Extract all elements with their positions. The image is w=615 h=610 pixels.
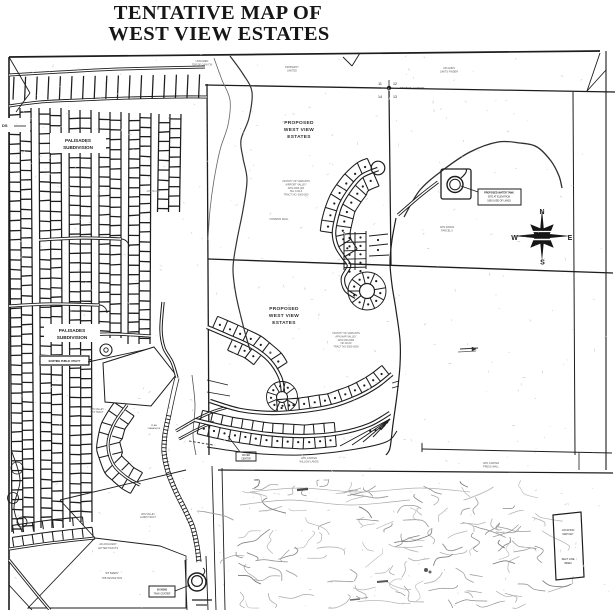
svg-text:WATER: WATER: [242, 454, 250, 457]
svg-text:LOCATION: LOCATION: [562, 529, 575, 532]
svg-text:SITE AT ELEVATION: SITE AT ELEVATION: [488, 196, 511, 199]
svg-text:SECT LINE: SECT LINE: [562, 558, 575, 561]
svg-text:N: N: [539, 209, 544, 216]
svg-text:13: 13: [393, 95, 397, 99]
svg-text:S: S: [540, 260, 545, 267]
svg-text:TANK CENTER: TANK CENTER: [154, 593, 171, 596]
svg-text:APN VALLEY: APN VALLEY: [141, 513, 155, 516]
svg-text:TRB CENTER SITE: TRB CENTER SITE: [102, 578, 123, 580]
svg-text:PALISADES: PALISADES: [59, 328, 85, 333]
svg-text:COMMON WALL: COMMON WALL: [269, 218, 289, 221]
svg-text:PLAN: PLAN: [151, 424, 157, 427]
svg-text:12: 12: [393, 82, 397, 86]
svg-text:LETTER TRACTS: LETTER TRACTS: [98, 547, 119, 550]
svg-text:PALISADES: PALISADES: [65, 138, 91, 143]
svg-text:ST MARY: ST MARY: [105, 571, 118, 575]
svg-text:DS: DS: [2, 123, 8, 128]
svg-text:14: 14: [378, 95, 382, 99]
svg-text:TRACT NO 0000-0000: TRACT NO 0000-0000: [333, 346, 359, 349]
svg-text:TRACT NO. 0000-000: TRACT NO. 0000-000: [284, 194, 309, 197]
svg-text:SUBDIVISION: SUBDIVISION: [63, 145, 94, 150]
svg-text:SUBDIVISION: SUBDIVISION: [57, 335, 88, 340]
svg-text:TENTATIVE MAP OF: TENTATIVE MAP OF: [114, 2, 322, 24]
svg-text:W: W: [511, 235, 518, 242]
svg-text:E: E: [568, 235, 573, 242]
svg-text:APN 00-000: APN 00-000: [146, 190, 160, 193]
svg-text:WEST VIEW: WEST VIEW: [269, 313, 299, 319]
svg-text:CANADA DR: CANADA DR: [148, 427, 161, 430]
svg-text:ESTATES: ESTATES: [287, 134, 311, 140]
svg-text:1800 (USE OF LAND): 1800 (USE OF LAND): [487, 200, 511, 203]
svg-text:WEST VIEW ESTATES: WEST VIEW ESTATES: [108, 23, 329, 45]
svg-text:TOP OF CANYON: TOP OF CANYON: [192, 63, 213, 66]
svg-text:ESTATES: ESTATES: [272, 320, 296, 326]
svg-text:50 50000: 50 50000: [157, 589, 168, 592]
svg-text:AD ADJACENT: AD ADJACENT: [99, 543, 117, 546]
svg-text:PARCEL 0: PARCEL 0: [441, 229, 453, 232]
svg-text:APN VALLEY: APN VALLEY: [90, 408, 104, 411]
svg-text:LIMITED: LIMITED: [287, 69, 297, 72]
svg-text:LANDS TRACT: LANDS TRACT: [140, 516, 157, 519]
svg-text:LOT TRACT: LOT TRACT: [91, 411, 104, 414]
svg-text:11: 11: [378, 82, 382, 86]
svg-text:CENTER: CENTER: [241, 459, 251, 461]
svg-text:INDEX: INDEX: [564, 562, 572, 565]
svg-text:SECTION CORNER: SECTION CORNER: [400, 86, 424, 90]
svg-text:PROPOSED: PROPOSED: [284, 120, 314, 126]
svg-text:PROPOSED: PROPOSED: [269, 306, 299, 312]
svg-text:WILLOW LANDS: WILLOW LANDS: [299, 460, 319, 463]
svg-text:PROPOSED WATER TANK: PROPOSED WATER TANK: [484, 192, 514, 195]
svg-text:LIMITS FINDER: LIMITS FINDER: [440, 70, 458, 73]
svg-text:WEST VIEW: WEST VIEW: [284, 127, 314, 133]
svg-text:MAP KEY: MAP KEY: [562, 533, 573, 536]
svg-text:PRESS WALL: PRESS WALL: [483, 465, 499, 468]
